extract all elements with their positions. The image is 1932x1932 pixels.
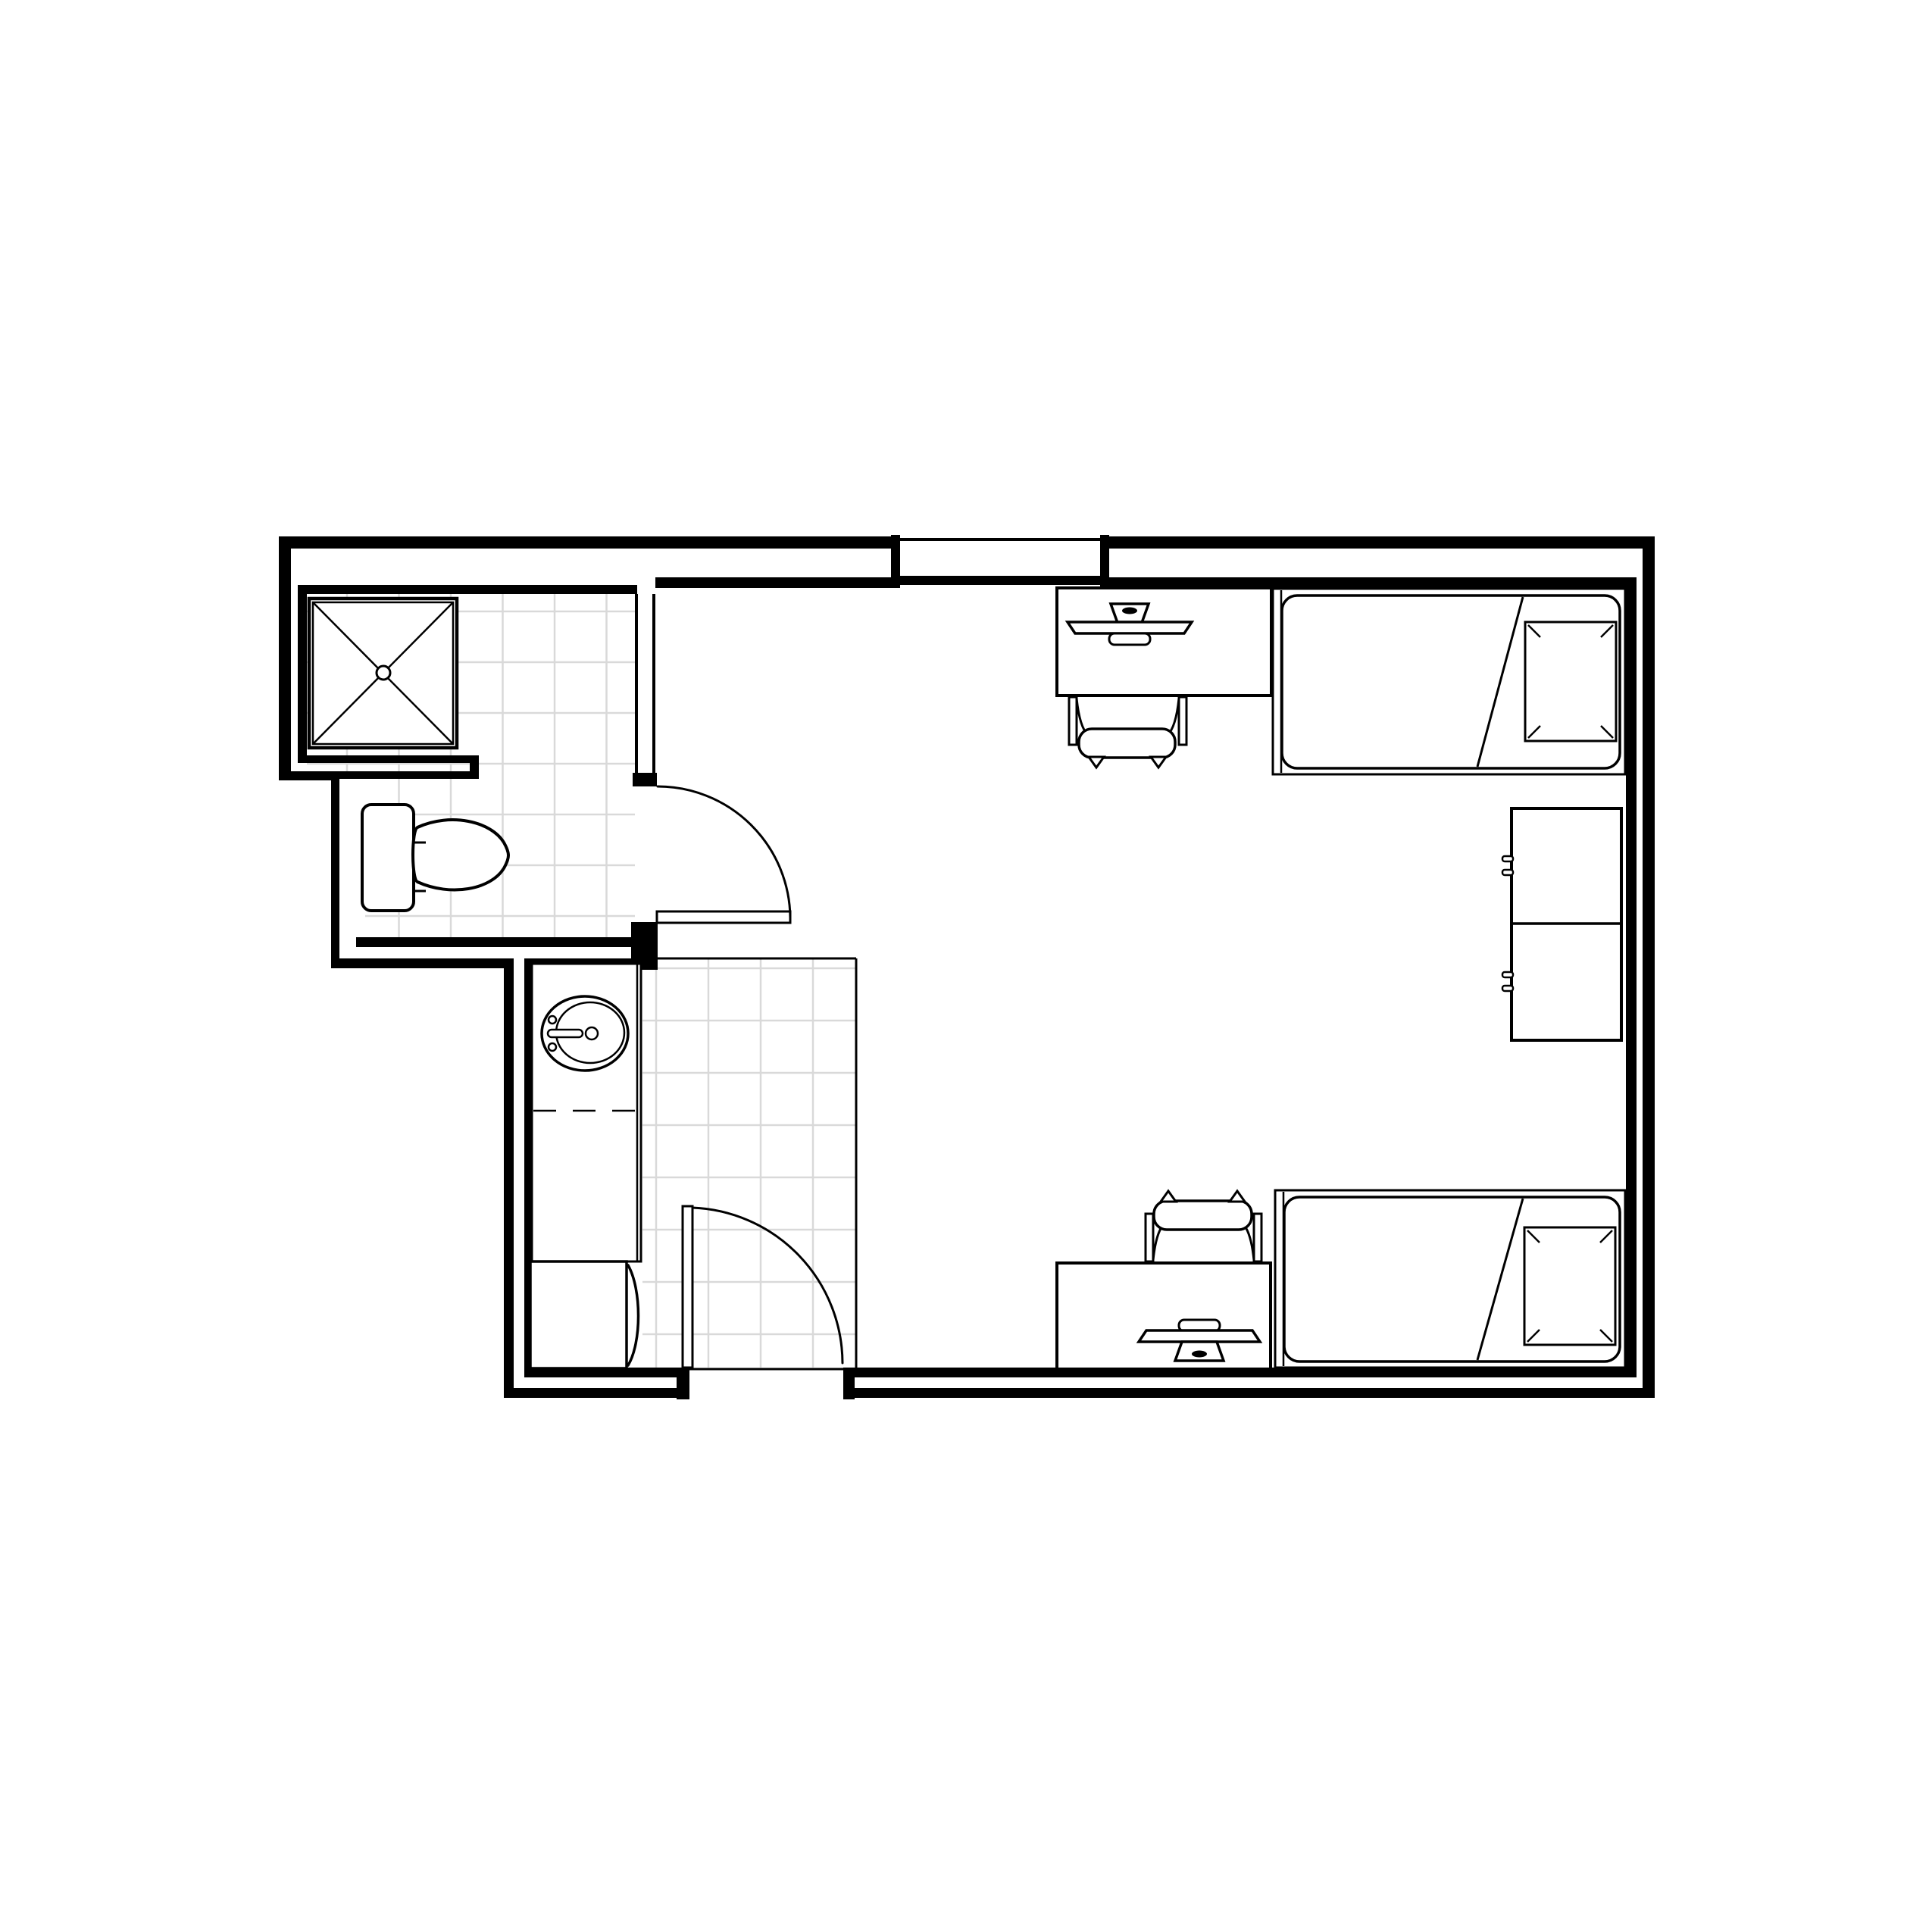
toilet-tank (362, 805, 414, 911)
bath-door-leaf (657, 911, 790, 923)
wall-bath-bottom-inner (356, 937, 639, 947)
floor-plan-canvas (0, 0, 1932, 1932)
chair-north-backrest (1079, 729, 1175, 758)
chair-south-arm-left (1146, 1214, 1153, 1261)
chair-south-caster-left (1161, 1191, 1176, 1202)
sink-tap-dot-b (549, 1043, 556, 1051)
sink-faucet-knob (586, 1027, 598, 1039)
wardrobe-handle-1 (1502, 856, 1513, 861)
corridor-closet-curve (628, 1265, 639, 1365)
desk-south (1057, 1263, 1271, 1369)
wall-shower-bottom-outer (298, 771, 479, 779)
wardrobe-handle-2 (1502, 870, 1513, 875)
monitor-north-screen (1068, 622, 1192, 633)
entry-door-jamb-left (677, 1368, 689, 1399)
window-sill-band (900, 576, 1100, 585)
window-jamb-right (1100, 535, 1109, 588)
floor-plan-figure (0, 0, 1932, 1932)
desk-north (1057, 588, 1271, 696)
monitor-north-bracket (1109, 633, 1150, 645)
bed-south-mattress (1284, 1197, 1620, 1361)
wall-bedroom-inner-north-east (1109, 577, 1637, 588)
wall-right-outer (1643, 536, 1655, 1398)
wall-shower-end-cap (470, 755, 479, 779)
sink-faucet-bar (548, 1030, 583, 1037)
wall-bedroom-inner-east (1626, 577, 1637, 1377)
monitor-north-stand-dot (1122, 608, 1137, 614)
chair-south-backrest (1154, 1201, 1252, 1230)
chair-north-caster-right (1151, 757, 1166, 767)
entry-door-swing-arc (692, 1208, 843, 1363)
monitor-south-screen (1139, 1330, 1260, 1342)
corridor-closet (530, 1261, 627, 1368)
bath-door-jamb-top (633, 773, 657, 786)
wall-bedroom-inner-north-west (655, 577, 891, 588)
wall-outer-left-lower (331, 771, 339, 962)
wall-top-outer-right (1100, 536, 1655, 549)
wardrobe-handle-4 (1502, 986, 1513, 991)
wall-bathroom-inner-left (298, 585, 307, 760)
chair-north-arm-left (1069, 697, 1077, 745)
wall-bathroom-top-band (298, 585, 637, 594)
vestibule-tile-grid (642, 958, 856, 1368)
chair-north-arm-right (1179, 697, 1186, 745)
wall-shower-bottom-inner (298, 755, 470, 763)
wardrobe-handle-3 (1502, 972, 1513, 977)
wall-bottom-outer-right (843, 1388, 1655, 1398)
window-jamb-left (891, 535, 900, 588)
wall-bottom-outer-left (504, 1388, 689, 1398)
wall-top-outer-left (279, 536, 900, 549)
chair-south-arm-right (1254, 1214, 1261, 1261)
chair-north-caster-left (1089, 757, 1104, 767)
shower-drain (377, 666, 390, 680)
entry-door-leaf (683, 1206, 692, 1368)
wall-left-outer (279, 536, 291, 780)
toilet-bowl (413, 820, 508, 889)
monitor-south-stand-dot (1192, 1351, 1207, 1358)
bath-door-swing-arc (658, 786, 790, 918)
chair-south-caster-right (1230, 1191, 1245, 1202)
wall-corridor-outer-left (504, 958, 514, 1398)
sink-tap-dot-a (549, 1016, 556, 1024)
wall-bath-bottom-outer-a (331, 958, 514, 968)
